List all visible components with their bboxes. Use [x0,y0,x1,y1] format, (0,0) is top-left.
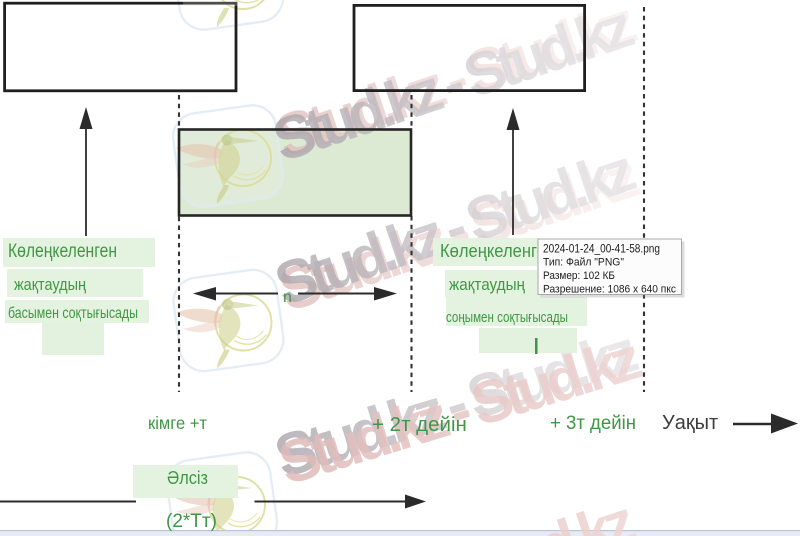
svg-text:Тип: Файл "PNG": Тип: Файл "PNG" [543,257,624,269]
svg-text:n: n [283,289,292,306]
svg-text:кімге +т: кімге +т [148,413,207,433]
svg-text:2024-01-24_00-41-58.png: 2024-01-24_00-41-58.png [543,242,660,256]
svg-text:Размер: 102 КБ: Размер: 102 КБ [543,270,615,282]
svg-text:соңымен соқтығысады: соңымен соқтығысады [446,309,568,326]
svg-text:+ 3т дейін: + 3т дейін [550,412,636,434]
svg-text:Көлеңкеленген: Көлеңкеленген [8,241,117,262]
svg-text:+ 2т дейін: + 2т дейін [372,413,467,436]
svg-text:(2*Тт): (2*Тт) [166,511,217,532]
svg-text:Әлсіз: Әлсіз [167,467,208,488]
svg-text:жақтаудың: жақтаудың [449,275,526,294]
svg-text:Разрешение: 1086 x 640 пкс: Разрешение: 1086 x 640 пкс [543,284,676,296]
svg-text:жақтаудың: жақтаудың [14,275,87,294]
svg-text:Stud.kz - Stud.kz: Stud.kz - Stud.kz [267,487,644,536]
svg-text:басымен соқтығысады: басымен соқтығысады [8,305,138,322]
svg-text:Уақыт: Уақыт [662,412,718,434]
